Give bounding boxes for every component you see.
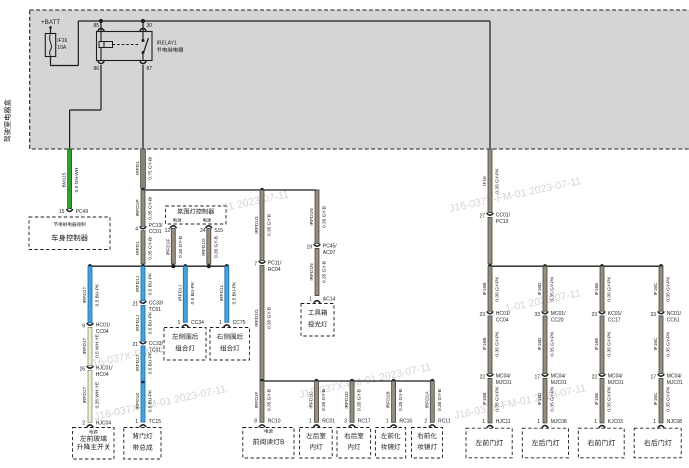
svg-text:RC17: RC17 [358,419,371,425]
svg-text:IF16C: IF16C [653,392,659,406]
svg-text:IRFD1G: IRFD1G [201,238,207,256]
svg-text:NC01/: NC01/ [667,311,682,317]
svg-text:CC61: CC61 [667,318,680,324]
svg-text:0.35 GY-B: 0.35 GY-B [213,236,219,258]
svg-text:RC11: RC11 [438,419,451,425]
svg-text:1: 1 [309,296,312,302]
svg-text:AC14: AC14 [323,296,336,302]
svg-text:IRFD1F: IRFD1F [254,392,260,409]
svg-text:IRFD1L: IRFD1L [219,284,225,301]
svg-text:MC04/: MC04/ [551,374,566,380]
svg-text:23: 23 [479,312,485,318]
svg-text:2: 2 [425,419,428,425]
svg-text:0.35 GY-PK: 0.35 GY-PK [607,331,613,357]
svg-text:87: 87 [147,66,153,72]
svg-text:+BATT: +BATT [41,19,60,26]
svg-text:IF16E: IF16E [594,283,600,296]
svg-text:IRFD1T: IRFD1T [82,338,88,355]
svg-text:0.35 GY-PK: 0.35 GY-PK [666,331,672,357]
svg-text:IF16E: IF16E [594,393,600,406]
svg-text:27: 27 [479,214,485,220]
svg-text:HC01/: HC01/ [496,311,511,317]
svg-text:0.35 GY-Br: 0.35 GY-Br [148,196,154,220]
svg-text:IF16C: IF16C [653,282,659,296]
svg-text:CC20: CC20 [551,318,564,324]
svg-text:7: 7 [254,262,257,268]
svg-text:IRFD1P: IRFD1P [135,199,141,216]
svg-text:IF16D: IF16D [537,392,543,406]
svg-text:0.35 GY-B: 0.35 GY-B [321,389,327,411]
svg-text:IRFD1J: IRFD1J [135,275,141,292]
svg-text:IRFD1T: IRFD1T [82,387,88,404]
svg-text:KJC03: KJC03 [608,419,623,425]
svg-text:0.35 GY-B: 0.35 GY-B [357,389,363,411]
svg-text:PC11/: PC11/ [268,261,282,267]
svg-text:IF16C: IF16C [653,337,659,351]
svg-text:0.5 BU-PK: 0.5 BU-PK [231,281,237,304]
svg-text:NJC08: NJC08 [667,419,683,425]
svg-text:IRFD1D: IRFD1D [344,391,350,409]
svg-text:CC17: CC17 [608,318,621,324]
svg-text:0.35 GY-PK: 0.35 GY-PK [607,386,613,412]
svg-text:IRFD1C: IRFD1C [309,391,315,409]
svg-text:1: 1 [594,419,597,425]
svg-text:PC13/: PC13/ [149,223,164,229]
svg-text:2: 2 [82,420,85,426]
svg-text:0.35 GY-B: 0.35 GY-B [267,307,273,329]
svg-text:IRFD1J: IRFD1J [177,284,183,301]
svg-text:0.35 GY-B: 0.35 GY-B [437,389,443,411]
svg-text:CC01: CC01 [149,229,162,235]
svg-text:33: 33 [650,312,656,318]
svg-text:IF16B: IF16B [482,338,488,351]
svg-text:0.35 GY-PK: 0.35 GY-PK [666,386,672,412]
svg-text:0.35 GY-PK: 0.35 GY-PK [550,331,556,357]
svg-text:IRFD1G: IRFD1G [254,309,260,327]
svg-text:MC04/: MC04/ [496,374,511,380]
svg-text:1: 1 [178,320,181,326]
svg-text:23: 23 [591,312,597,318]
svg-text:CC75: CC75 [233,320,246,326]
svg-text:MJC01: MJC01 [496,380,512,386]
svg-text:IRFD1: IRFD1 [135,241,141,255]
svg-text:IRFD1B: IRFD1B [386,391,392,408]
svg-text:IRFD1T: IRFD1T [82,287,88,304]
svg-text:TC15: TC15 [149,419,161,425]
svg-text:IF16D: IF16D [537,282,543,296]
svg-text:CC01/: CC01/ [496,213,511,219]
svg-text:0.5 WH-YE: 0.5 WH-YE [95,334,101,358]
svg-text:0.5 BU-PK: 0.5 BU-PK [190,281,196,304]
svg-text:15: 15 [59,209,65,215]
svg-text:9: 9 [82,324,85,330]
svg-text:1: 1 [653,419,656,425]
svg-text:19: 19 [306,245,312,251]
svg-text:30: 30 [147,23,153,29]
svg-text:RC16: RC16 [399,419,412,425]
svg-text:IRELAY1: IRELAY1 [157,41,177,47]
svg-text:IF16: IF16 [57,38,67,44]
svg-text:KC01/: KC01/ [608,311,623,317]
svg-text:0.35 GY-B: 0.35 GY-B [178,236,184,258]
svg-text:HC01/: HC01/ [96,323,111,329]
svg-text:CC33/: CC33/ [149,341,164,347]
svg-text:4: 4 [135,227,138,233]
svg-text:HJC11: HJC11 [496,419,511,425]
svg-text:HJC04: HJC04 [96,420,112,426]
svg-text:33: 33 [534,312,540,318]
svg-text:HJC01/: HJC01/ [96,366,113,372]
svg-text:PC45/: PC45/ [323,244,338,250]
svg-text:PC49: PC49 [76,209,89,215]
svg-text:8: 8 [254,419,257,425]
svg-text:IRFD1N: IRFD1N [309,263,315,281]
svg-text:IRFD1A: IRFD1A [424,391,430,409]
svg-text:0.35 GY-PK: 0.35 GY-PK [607,276,613,302]
svg-text:CC04: CC04 [496,318,509,324]
svg-text:21: 21 [132,342,138,348]
svg-text:RC10: RC10 [268,419,281,425]
svg-text:3: 3 [344,419,347,425]
svg-text:0.5 BU-PK: 0.5 BU-PK [148,351,154,374]
svg-text:IF16B: IF16B [482,283,488,296]
svg-text:0.35 GY-PK: 0.35 GY-PK [495,276,501,302]
svg-text:IF16B: IF16B [482,393,488,406]
svg-text:0.35 GY-PK: 0.35 GY-PK [666,276,672,302]
svg-text:0.5 BU-PK: 0.5 BU-PK [148,272,154,295]
svg-text:MJC08: MJC08 [551,419,567,425]
svg-text:MJC01: MJC01 [551,380,567,386]
svg-text:0.35 GY-B: 0.35 GY-B [267,389,273,411]
svg-text:RC01: RC01 [322,419,335,425]
svg-text:22: 22 [479,375,485,381]
svg-text:0.35 GY-B: 0.35 GY-B [322,261,328,283]
svg-text:IRFD1G: IRFD1G [254,216,260,234]
svg-text:0.35 GY-PK: 0.35 GY-PK [495,168,501,194]
svg-text:CC33/: CC33/ [149,301,164,307]
svg-text:0.35 GY-B: 0.35 GY-B [398,389,404,411]
svg-text:IRFD1J: IRFD1J [135,354,141,371]
svg-text:IF16: IF16 [482,176,488,186]
svg-text:S15: S15 [214,228,223,234]
svg-text:17: 17 [534,375,540,381]
svg-text:0.35 GY-B: 0.35 GY-B [267,214,273,236]
svg-text:MC01/: MC01/ [551,311,566,317]
svg-text:0.35 WH-YE: 0.35 WH-YE [95,382,101,409]
svg-text:0.5 BU-PK: 0.5 BU-PK [95,283,101,306]
svg-text:IRFD1N: IRFD1N [309,208,315,226]
svg-text:85: 85 [93,23,99,29]
svg-text:1: 1 [309,419,312,425]
svg-text:IF16E: IF16E [594,338,600,351]
svg-text:17: 17 [650,375,656,381]
svg-text:0.35 GY-B: 0.35 GY-B [322,206,328,228]
svg-text:0.5 BU-PK: 0.5 BU-PK [148,311,154,334]
svg-text:22: 22 [591,375,597,381]
svg-text:26: 26 [79,367,85,373]
svg-text:12: 12 [165,228,171,234]
svg-text:IRFD1F: IRFD1F [165,239,171,256]
svg-text:1: 1 [482,419,485,425]
svg-text:CC34: CC34 [191,320,204,326]
svg-text:1: 1 [386,419,389,425]
svg-text:MJC01: MJC01 [608,380,624,386]
svg-text:MJC01: MJC01 [667,380,683,386]
svg-text:BM115: BM115 [62,172,68,187]
svg-text:24: 24 [200,228,206,234]
svg-text:IRFD1: IRFD1 [135,161,141,175]
svg-text:21: 21 [132,302,138,308]
svg-text:MC04/: MC04/ [608,374,623,380]
svg-text:1: 1 [537,419,540,425]
svg-text:IRFD1J: IRFD1J [135,314,141,331]
svg-text:0.35 GY-PK: 0.35 GY-PK [550,386,556,412]
svg-text:10A: 10A [57,45,67,51]
svg-text:PC13: PC13 [496,219,509,225]
svg-text:0.35 GY-Br: 0.35 GY-Br [148,236,154,260]
svg-text:HC04: HC04 [96,372,109,378]
svg-text:RC04: RC04 [268,267,281,273]
svg-text:0.5 BU-PK: 0.5 BU-PK [148,389,154,412]
svg-text:MC04/: MC04/ [667,374,682,380]
svg-text:0.75 GY-Br: 0.75 GY-Br [148,156,154,180]
svg-text:1: 1 [135,419,138,425]
svg-text:0.35 GY-PK: 0.35 GY-PK [495,386,501,412]
svg-text:0.35 GY-PK: 0.35 GY-PK [495,331,501,357]
svg-text:0.5 GN-WH: 0.5 GN-WH [74,167,80,192]
svg-text:86: 86 [93,66,99,72]
svg-text:AC07: AC07 [323,250,336,256]
svg-text:0.35 GY-PK: 0.35 GY-PK [550,276,556,302]
svg-text:1: 1 [219,320,222,326]
svg-text:IF16D: IF16D [537,337,543,351]
svg-text:IRFD1K: IRFD1K [135,392,141,410]
